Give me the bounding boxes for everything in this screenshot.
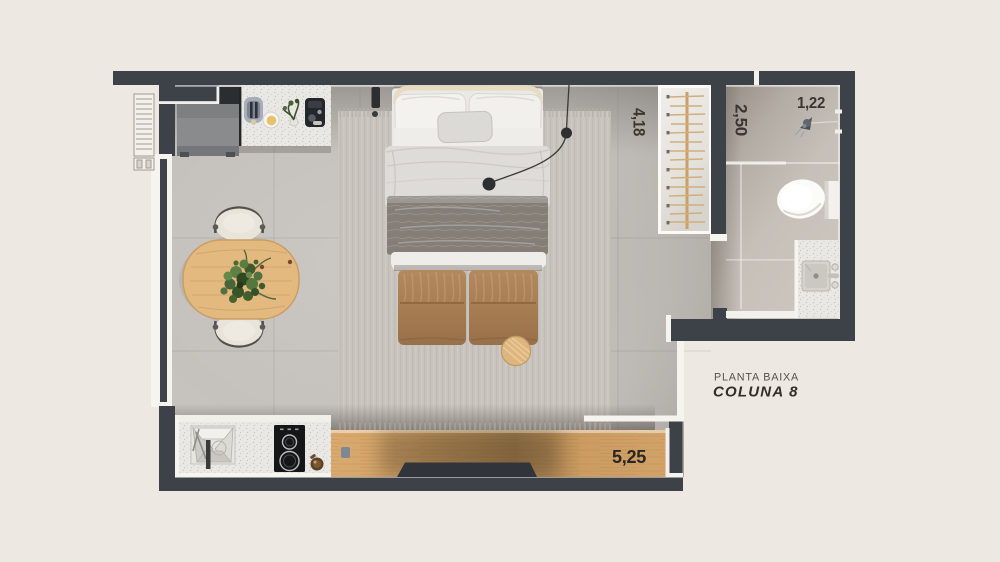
svg-text:4,18: 4,18	[630, 108, 649, 136]
svg-text:PLANTA BAIXA: PLANTA BAIXA	[714, 372, 799, 384]
svg-text:5,25: 5,25	[612, 447, 646, 467]
svg-text:1,22: 1,22	[797, 95, 825, 112]
svg-text:2,50: 2,50	[732, 104, 751, 136]
svg-text:COLUNA 8: COLUNA 8	[713, 384, 799, 401]
